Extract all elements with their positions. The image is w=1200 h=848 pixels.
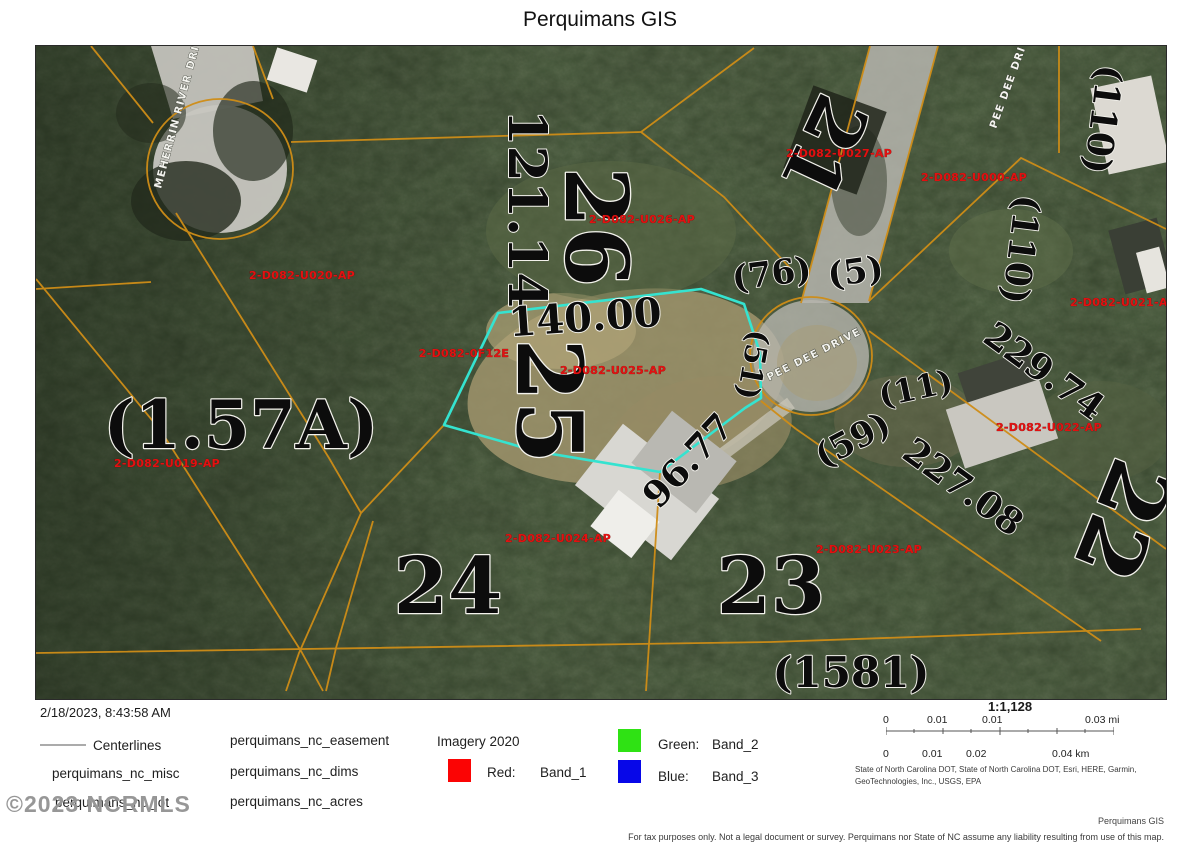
attribution-line2: GeoTechnologies, Inc., USGS, EPA — [855, 776, 1175, 787]
legend-imagery: Imagery 2020 — [437, 734, 520, 749]
parcel-id-u020: 2-D082-U020-AP — [249, 269, 355, 282]
acres-label-5: (5) — [825, 248, 886, 295]
legend-misc: perquimans_nc_misc — [52, 766, 180, 781]
acres-label-157a: (1.57A) — [104, 386, 378, 464]
attribution-line1: State of North Carolina DOT, State of No… — [855, 764, 1175, 775]
map-canvas[interactable]: MEHERRIN RIVER DRIVE PEE DEE DRIVE PEE D… — [36, 46, 1166, 699]
red-band-swatch — [448, 759, 471, 782]
legend-green-band: Band_2 — [712, 737, 759, 752]
scale-km-0: 0 — [883, 748, 889, 760]
parcel-id-u024: 2-D082-U024-AP — [505, 532, 611, 545]
legend-red-band: Band_1 — [540, 765, 587, 780]
scale-mi-2: 0.01 — [982, 714, 1002, 726]
scale-bar — [886, 727, 1114, 735]
lot-label-26: 26 — [545, 167, 646, 287]
scale-km-2: 0.02 — [966, 748, 986, 760]
legend-green-label: Green: — [658, 737, 699, 752]
centerlines-swatch — [40, 744, 86, 746]
scale-mi-0: 0 — [883, 714, 889, 726]
scale-mi-1: 0.01 — [927, 714, 947, 726]
scale-mi-3: 0.03 mi — [1085, 714, 1119, 726]
legend-red-label: Red: — [487, 765, 516, 780]
lot-label-23: 23 — [717, 541, 826, 632]
footer-disclaimer: For tax purposes only. Not a legal docum… — [628, 832, 1164, 842]
legend-easement: perquimans_nc_easement — [230, 733, 389, 748]
scale-km-1: 0.01 — [922, 748, 942, 760]
parcel-id-0f12e: 2-D082-0F12E — [419, 347, 509, 360]
page-title: Perquimans GIS — [0, 8, 1200, 32]
map-frame: MEHERRIN RIVER DRIVE PEE DEE DRIVE PEE D… — [35, 45, 1167, 700]
legend-blue-band: Band_3 — [712, 769, 759, 784]
legend-blue-label: Blue: — [658, 769, 689, 784]
parcel-id-u027: 2-D082-U027-AP — [786, 147, 892, 160]
parcel-id-u023: 2-D082-U023-AP — [816, 543, 922, 556]
parcel-id-u021: 2-D082-U021-AP — [1070, 296, 1166, 309]
dim-label-121: 121.14 — [496, 109, 557, 308]
legend-acres: perquimans_nc_acres — [230, 794, 363, 809]
blue-band-swatch — [618, 760, 641, 783]
parcel-id-u000: 2-D082-U000-AP — [921, 171, 1027, 184]
lot-label-25: 25 — [496, 338, 602, 463]
watermark: ©2023 NCRMLS — [6, 791, 191, 818]
legend-centerlines: Centerlines — [93, 738, 161, 753]
footer-brand: Perquimans GIS — [1098, 816, 1164, 826]
lot-label-24: 24 — [394, 541, 503, 632]
scale-km-3: 0.04 km — [1052, 748, 1089, 760]
timestamp: 2/18/2023, 8:43:58 AM — [40, 705, 171, 720]
parcel-id-u019: 2-D082-U019-AP — [114, 457, 220, 470]
parcel-id-u022: 2-D082-U022-AP — [996, 421, 1102, 434]
legend-dims: perquimans_nc_dims — [230, 764, 358, 779]
parcel-id-u026: 2-D082-U026-AP — [589, 213, 695, 226]
green-band-swatch — [618, 729, 641, 752]
parcel-id-u025: 2-D082-U025-AP — [560, 364, 666, 377]
acres-label-1581: (1581) — [773, 648, 930, 697]
scale-ratio: 1:1,128 — [955, 699, 1065, 714]
